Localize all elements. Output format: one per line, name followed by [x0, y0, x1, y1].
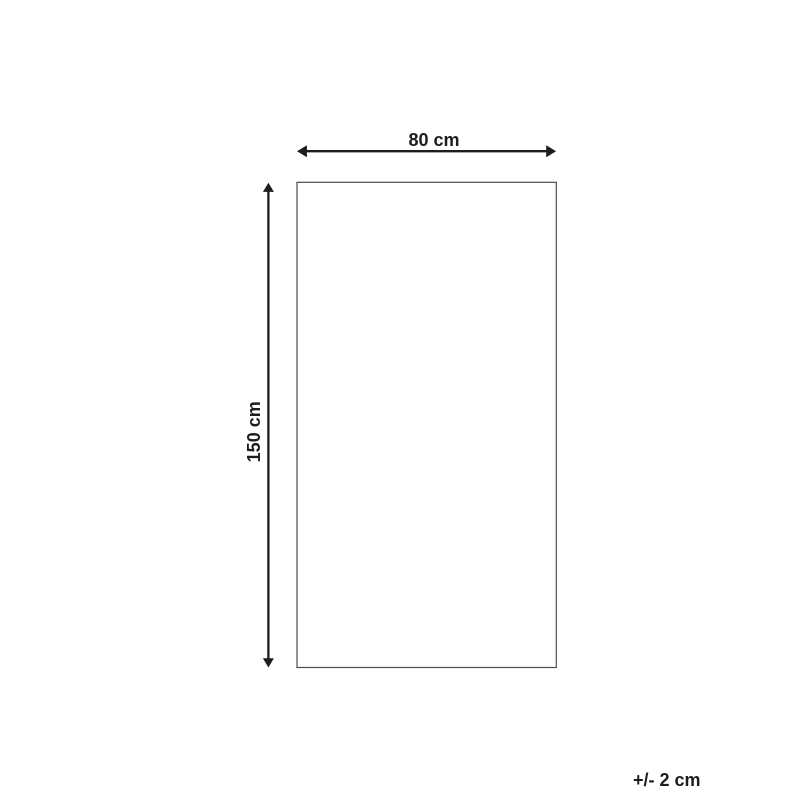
- svg-text:80 cm: 80 cm: [408, 130, 459, 150]
- svg-text:150 cm: 150 cm: [244, 401, 264, 462]
- svg-text:+/- 2 cm: +/- 2 cm: [633, 770, 701, 790]
